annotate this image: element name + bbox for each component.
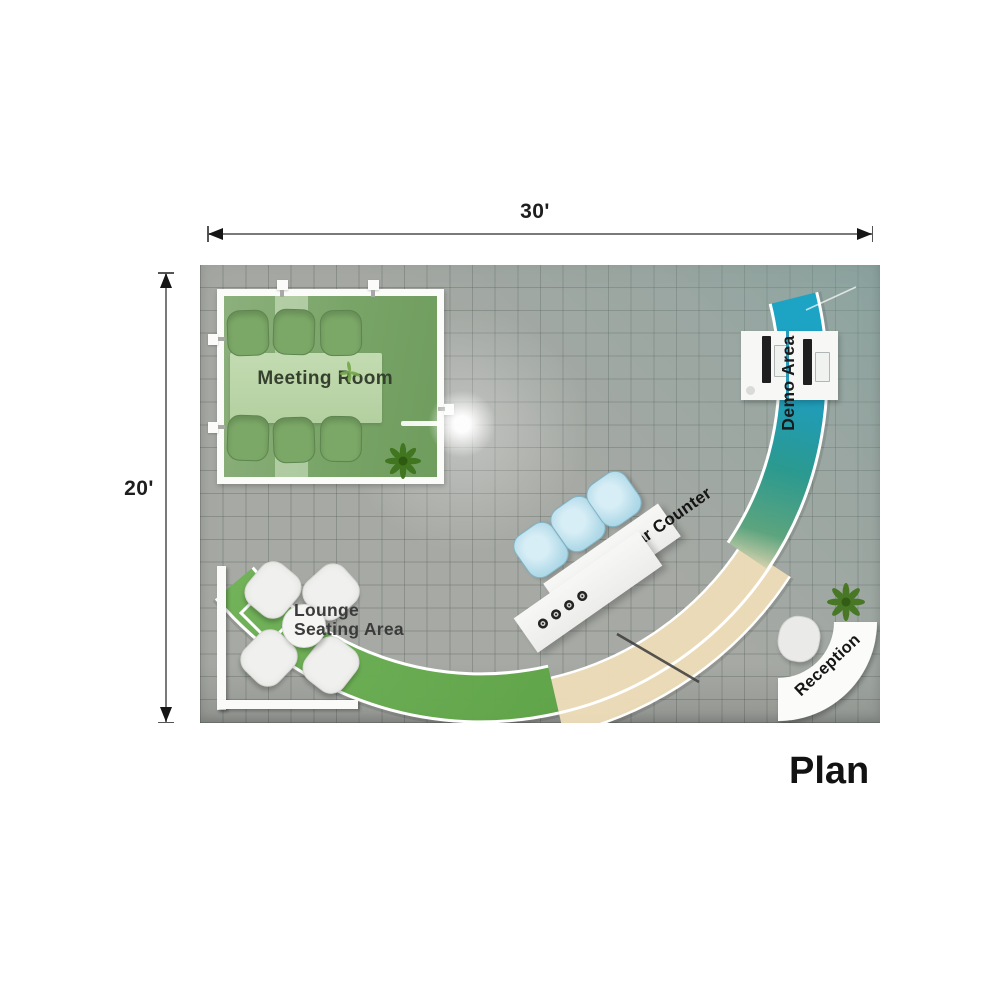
door-jamb: [368, 280, 379, 290]
knob-icon: [549, 607, 563, 621]
keyboard-icon: [815, 352, 830, 382]
meeting-chair: [320, 416, 363, 463]
knob-icon: [575, 589, 589, 603]
door-handle: [401, 421, 441, 426]
lounge-label-line2: Seating Area: [294, 620, 404, 639]
arrow-down-icon: [160, 707, 172, 722]
arrow-right-icon: [857, 228, 872, 240]
lounge-area-label: Lounge Seating Area: [294, 601, 404, 639]
meeting-room-label: Meeting Room: [224, 368, 426, 390]
wall-slot: [438, 407, 445, 411]
lounge-wall-horizontal: [217, 700, 358, 709]
floor-plan-canvas: 30' 20': [0, 0, 1002, 1002]
door-jamb: [208, 422, 218, 433]
dimension-line: [208, 233, 872, 235]
height-dimension-label: 20': [112, 477, 166, 501]
demo-area-label: Demo Area: [778, 323, 799, 443]
meeting-chair: [226, 414, 270, 461]
monitor-icon: [762, 336, 771, 383]
meeting-chair: [226, 309, 270, 356]
knob-icon: [536, 617, 550, 631]
page-title: Plan: [789, 750, 869, 793]
wall-slot: [371, 290, 375, 297]
meeting-chair: [320, 310, 363, 357]
booth-floor: Meeting Room Lounge Seating Area: [200, 265, 880, 723]
desk-accessory: [746, 386, 755, 395]
arrow-left-icon: [208, 228, 223, 240]
door-jamb: [208, 334, 218, 345]
dimension-line-horizontal: [207, 226, 873, 242]
arrow-up-icon: [160, 273, 172, 288]
door-jamb: [444, 404, 454, 415]
meeting-chair: [272, 308, 316, 355]
meeting-room: Meeting Room: [217, 289, 444, 484]
width-dimension-label: 30': [480, 200, 590, 224]
lounge-label-line1: Lounge: [294, 601, 404, 620]
monitor-icon: [803, 339, 812, 385]
knob-icon: [562, 598, 576, 612]
wall-slot: [218, 425, 225, 429]
wall-slot: [218, 337, 225, 341]
lounge-wall-vertical: [217, 566, 226, 710]
door-jamb: [277, 280, 288, 290]
meeting-chair: [272, 416, 316, 463]
wall-slot: [280, 290, 284, 297]
